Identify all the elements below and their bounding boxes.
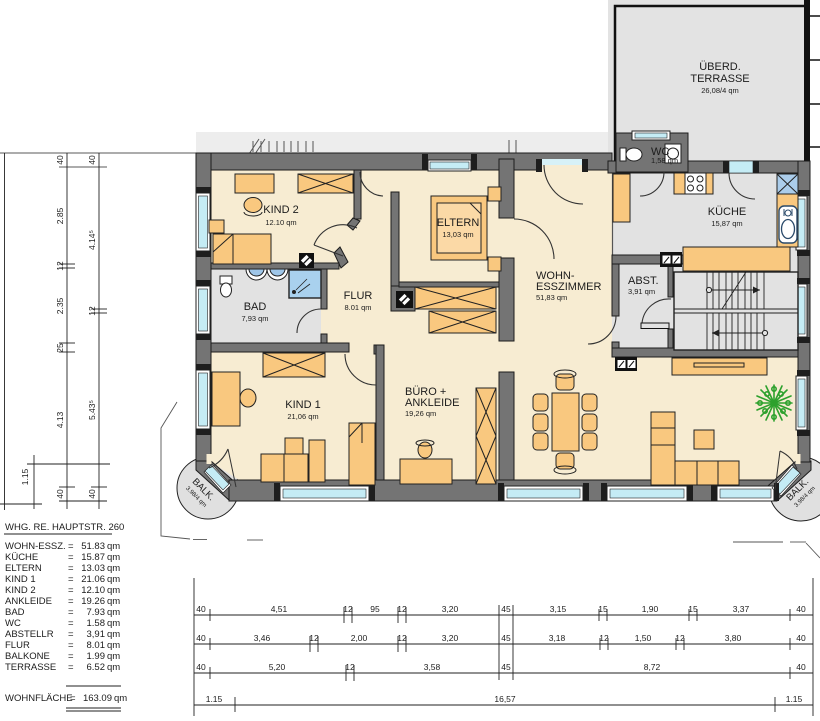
svg-text:3,20: 3,20 [442,633,459,643]
svg-text:1,58 qm: 1,58 qm [651,156,678,165]
svg-text:=: = [68,585,74,596]
svg-text:WOHN-ESSZ.: WOHN-ESSZ. [5,541,66,552]
svg-text:qm: qm [114,693,127,704]
svg-text:12.10 qm: 12.10 qm [265,218,296,227]
svg-text:26,08/4 qm: 26,08/4 qm [701,86,739,95]
svg-text:40: 40 [796,633,806,643]
svg-text:WHG. RE. HAUPTSTR. 260: WHG. RE. HAUPTSTR. 260 [5,522,124,533]
svg-text:WOHNFLÄCHE: WOHNFLÄCHE [5,693,73,704]
svg-text:3,37: 3,37 [733,604,750,614]
svg-text:ANKLEIDE: ANKLEIDE [405,397,459,409]
svg-text:qm: qm [107,607,120,618]
svg-text:51,83 qm: 51,83 qm [536,293,567,302]
svg-text:3,20: 3,20 [442,604,459,614]
svg-text:2,00: 2,00 [351,633,368,643]
svg-text:ABST.: ABST. [628,275,659,287]
svg-text:ELTERN: ELTERN [5,563,42,574]
svg-text:16,57: 16,57 [494,694,516,704]
svg-text:25: 25 [55,343,65,353]
svg-text:2.85: 2.85 [55,207,65,224]
svg-text:=: = [68,618,74,629]
svg-text:13.03: 13.03 [81,563,105,574]
svg-text:3,46: 3,46 [254,633,271,643]
svg-text:95: 95 [370,604,380,614]
svg-text:3,91: 3,91 [87,629,106,640]
svg-text:163.09: 163.09 [83,693,112,704]
svg-text:40: 40 [196,633,206,643]
svg-text:40: 40 [796,604,806,614]
svg-text:12.10: 12.10 [81,585,105,596]
svg-text:40: 40 [196,662,206,672]
svg-text:40: 40 [55,155,65,165]
svg-text:FLUR: FLUR [344,290,373,302]
svg-text:1.15: 1.15 [206,694,223,704]
svg-text:ELTERN: ELTERN [437,217,480,229]
svg-text:qm: qm [107,563,120,574]
svg-text:3,15: 3,15 [550,604,567,614]
svg-text:qm: qm [107,651,120,662]
svg-text:4,51: 4,51 [271,604,288,614]
svg-text:3,58: 3,58 [424,662,441,672]
svg-text:4.13: 4.13 [55,411,65,428]
svg-text:BAD: BAD [244,301,267,313]
svg-text:12: 12 [397,604,407,614]
svg-text:=: = [68,563,74,574]
svg-text:ESSZIMMER: ESSZIMMER [536,281,601,293]
svg-text:19.26: 19.26 [81,596,105,607]
svg-text:KÜCHE: KÜCHE [708,206,747,218]
svg-text:12: 12 [309,633,319,643]
svg-text:19,26 qm: 19,26 qm [405,409,436,418]
svg-text:3,18: 3,18 [549,633,566,643]
svg-text:6.52: 6.52 [87,662,106,673]
svg-text:12: 12 [675,633,685,643]
svg-text:15: 15 [688,604,698,614]
svg-text:ÜBERD.: ÜBERD. [699,61,741,73]
svg-text:1,50: 1,50 [635,633,652,643]
svg-text:40: 40 [796,662,806,672]
svg-text:40: 40 [87,155,97,165]
svg-text:1.15: 1.15 [786,694,803,704]
svg-text:1,90: 1,90 [642,604,659,614]
svg-text:=: = [68,662,74,673]
svg-text:40: 40 [87,489,97,499]
svg-text:BALKONE: BALKONE [5,651,50,662]
svg-text:ABSTELLR: ABSTELLR [5,629,54,640]
svg-text:45: 45 [501,604,511,614]
svg-text:12: 12 [345,662,355,672]
svg-text:=: = [68,574,74,585]
svg-text:45: 45 [501,662,511,672]
svg-text:40: 40 [196,604,206,614]
svg-text:=: = [68,651,74,662]
svg-text:8.01: 8.01 [87,640,106,651]
svg-text:KIND 2: KIND 2 [5,585,36,596]
svg-text:2.35: 2.35 [55,297,65,314]
svg-text:qm: qm [107,662,120,673]
svg-text:21,06 qm: 21,06 qm [287,412,318,421]
svg-text:1.58: 1.58 [87,618,106,629]
svg-text:KIND 1: KIND 1 [285,399,320,411]
svg-text:FLUR: FLUR [5,640,30,651]
svg-text:5,20: 5,20 [269,662,286,672]
svg-text:12: 12 [55,261,65,271]
svg-text:qm: qm [107,585,120,596]
svg-text:=: = [68,541,74,552]
svg-text:3,91 qm: 3,91 qm [628,287,655,296]
svg-text:TERRASSE: TERRASSE [5,662,56,673]
svg-text:12: 12 [343,604,353,614]
svg-text:8,72: 8,72 [644,662,661,672]
svg-text:KÜCHE: KÜCHE [5,552,38,563]
svg-text:ANKLEIDE: ANKLEIDE [5,596,52,607]
svg-text:15: 15 [598,604,608,614]
svg-text:TERRASSE: TERRASSE [690,73,749,85]
svg-text:qm: qm [107,618,120,629]
svg-text:qm: qm [107,629,120,640]
svg-text:1.99: 1.99 [87,651,106,662]
svg-text:7.93: 7.93 [87,607,106,618]
svg-text:45: 45 [501,633,511,643]
svg-text:15,87 qm: 15,87 qm [711,219,742,228]
svg-text:BAD: BAD [5,607,25,618]
svg-text:=: = [68,552,74,563]
svg-text:4.14⁵: 4.14⁵ [87,230,97,250]
svg-text:=: = [68,607,74,618]
svg-text:8.01 qm: 8.01 qm [344,303,371,312]
svg-text:qm: qm [107,574,120,585]
svg-text:KIND 1: KIND 1 [5,574,36,585]
svg-text:=: = [70,693,76,704]
svg-text:12: 12 [397,633,407,643]
svg-text:7,93 qm: 7,93 qm [241,314,268,323]
svg-text:15.87: 15.87 [81,552,105,563]
svg-text:51.83: 51.83 [81,541,105,552]
svg-text:KIND 2: KIND 2 [263,204,298,216]
svg-text:5.43⁵: 5.43⁵ [87,400,97,420]
svg-text:1.15: 1.15 [20,468,30,485]
svg-text:12: 12 [87,306,97,316]
svg-text:13,03 qm: 13,03 qm [442,230,473,239]
svg-text:qm: qm [107,596,120,607]
svg-text:qm: qm [107,541,120,552]
svg-text:=: = [68,596,74,607]
svg-text:12: 12 [599,633,609,643]
svg-text:=: = [68,640,74,651]
svg-text:WC: WC [5,618,21,629]
svg-text:qm: qm [107,552,120,563]
svg-text:40: 40 [55,489,65,499]
svg-text:qm: qm [107,640,120,651]
svg-text:3,80: 3,80 [725,633,742,643]
svg-text:21.06: 21.06 [81,574,105,585]
svg-text:=: = [68,629,74,640]
